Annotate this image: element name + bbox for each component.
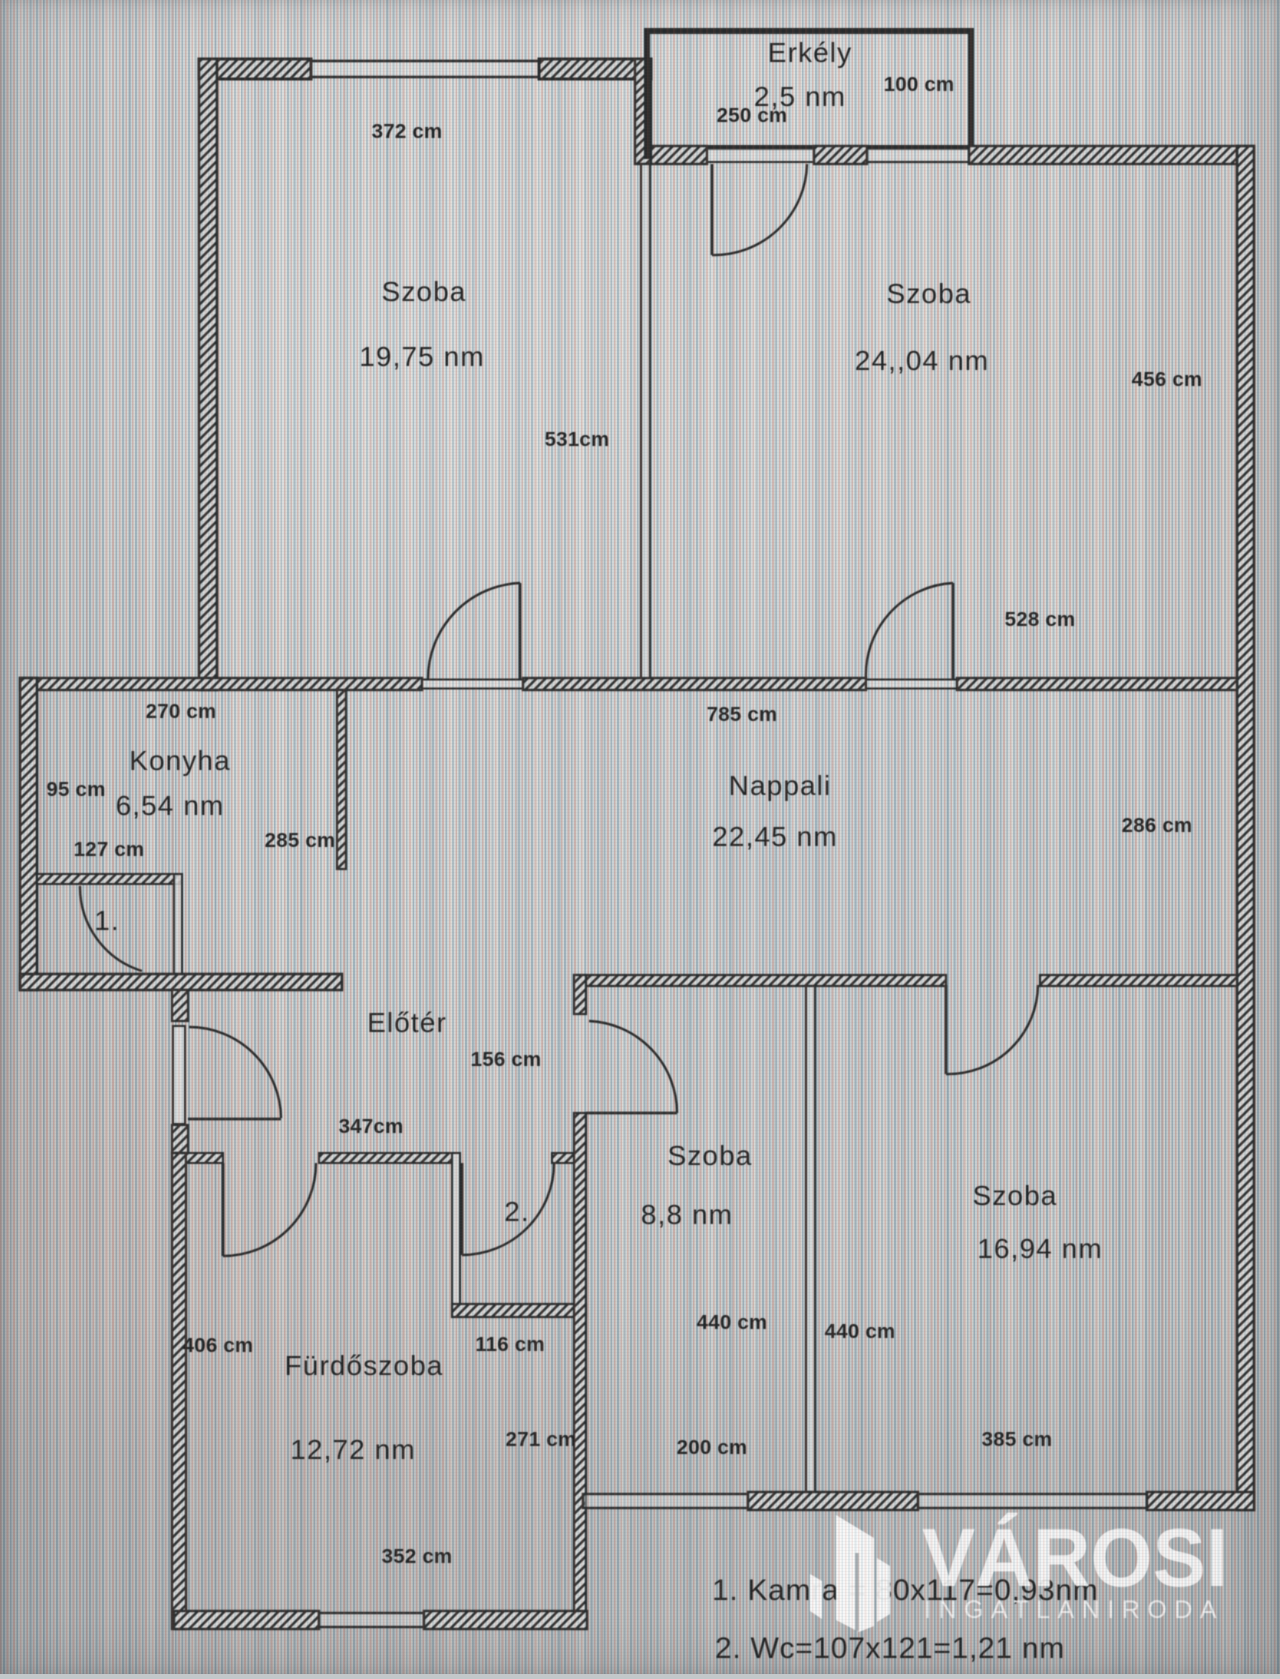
svg-text:116 cm: 116 cm [475,1333,545,1356]
svg-text:2. Wc=107x121=1,21 nm: 2. Wc=107x121=1,21 nm [715,1632,1065,1665]
svg-text:16,94 nm: 16,94 nm [977,1233,1103,1264]
svg-text:19,75 nm: 19,75 nm [359,341,485,372]
svg-text:6,54 nm: 6,54 nm [116,790,225,821]
svg-text:347cm: 347cm [339,1115,404,1138]
svg-text:285 cm: 285 cm [265,829,336,852]
svg-text:Erkély: Erkély [768,37,852,68]
svg-text:531cm: 531cm [545,428,610,451]
svg-text:2.: 2. [504,1196,530,1227]
svg-text:Konyha: Konyha [129,745,231,776]
svg-text:385 cm: 385 cm [982,1428,1053,1451]
svg-text:22,45 nm: 22,45 nm [712,821,838,852]
svg-text:456 cm: 456 cm [1132,368,1203,391]
svg-text:VÁROSI: VÁROSI [922,1511,1228,1604]
svg-text:156 cm: 156 cm [471,1048,542,1071]
svg-text:Szoba: Szoba [887,278,972,309]
svg-text:785 cm: 785 cm [707,703,778,726]
svg-text:Előtér: Előtér [367,1007,447,1038]
svg-text:Szoba: Szoba [382,276,467,307]
svg-text:372 cm: 372 cm [372,120,443,143]
svg-text:528 cm: 528 cm [1005,608,1076,631]
svg-text:440 cm: 440 cm [697,1311,768,1334]
svg-text:Nappali: Nappali [729,770,832,801]
svg-text:24,,04 nm: 24,,04 nm [855,345,989,376]
svg-text:100 cm: 100 cm [884,73,955,96]
svg-text:Szoba: Szoba [973,1180,1058,1211]
svg-text:12,72 nm: 12,72 nm [290,1434,416,1465]
svg-text:406 cm: 406 cm [183,1334,254,1357]
svg-text:Fürdőszoba: Fürdőszoba [285,1350,444,1381]
svg-text:95 cm: 95 cm [46,778,105,801]
svg-text:271 cm: 271 cm [506,1428,577,1451]
svg-text:127 cm: 127 cm [74,838,145,861]
svg-text:352 cm: 352 cm [382,1545,453,1568]
svg-text:286 cm: 286 cm [1122,814,1193,837]
svg-text:200 cm: 200 cm [677,1436,748,1459]
svg-text:Szoba: Szoba [668,1140,753,1171]
svg-text:270 cm: 270 cm [146,700,217,723]
svg-text:8,8 nm: 8,8 nm [641,1199,733,1230]
svg-text:INGATLANIRODA: INGATLANIRODA [924,1596,1224,1624]
svg-text:1.: 1. [94,905,120,936]
svg-text:250 cm: 250 cm [717,104,788,127]
svg-text:440 cm: 440 cm [825,1320,896,1343]
